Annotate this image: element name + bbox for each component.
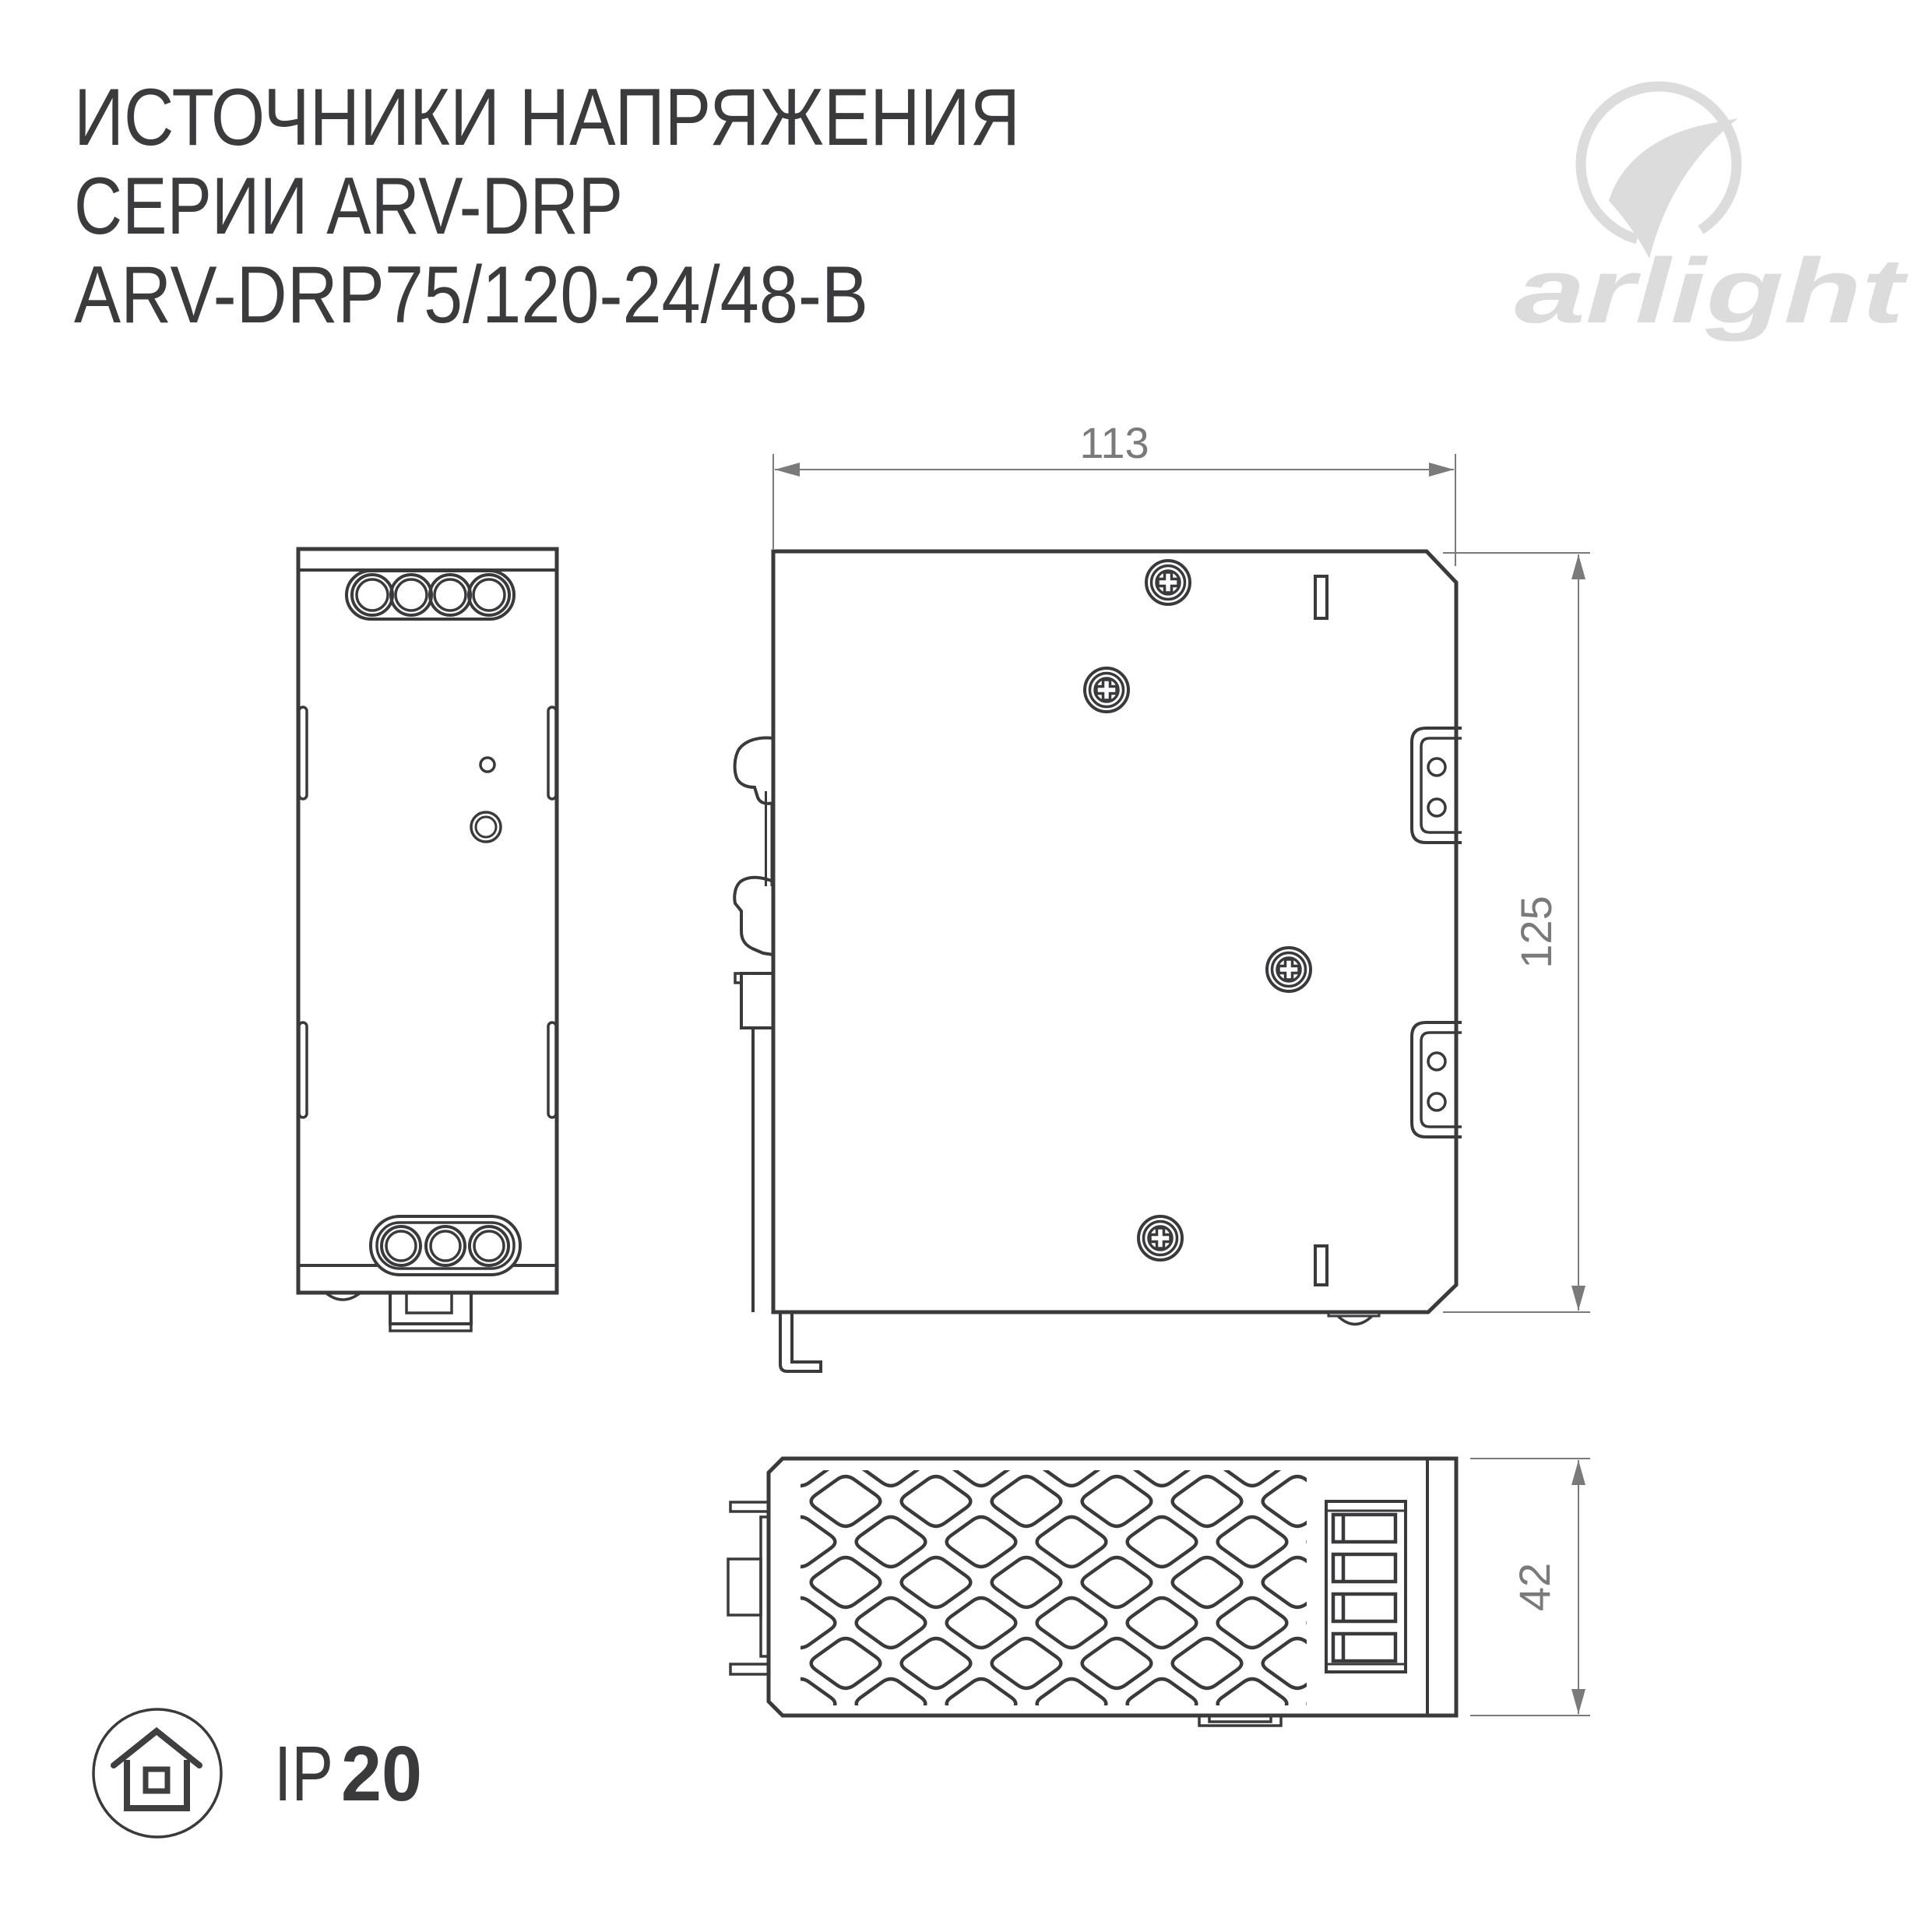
vent-slot	[1315, 1246, 1327, 1285]
front-body-outline	[298, 549, 557, 1293]
side-notch	[299, 707, 307, 799]
terminal-bracket-upper	[1412, 728, 1462, 843]
title-line-2: СЕРИИ ARV-DRP	[74, 161, 623, 252]
terminal-block	[1326, 1501, 1406, 1672]
diamond-vent-grid	[801, 1470, 1307, 1705]
din-rail-profile-bottom	[728, 1502, 769, 1674]
ip-prefix: IP	[274, 1730, 333, 1818]
screw-icon	[1146, 561, 1190, 604]
dim-width-value: 113	[1079, 418, 1149, 467]
dimension-height: 125	[1443, 553, 1590, 1312]
ip-badge: IP 20	[93, 1709, 422, 1837]
din-rail-profile	[734, 738, 821, 1371]
front-view	[298, 549, 557, 1331]
terminal-cells	[1333, 1515, 1395, 1661]
dim-depth-value: 42	[1510, 1563, 1559, 1611]
datasheet-page: ИСТОЧНИКИ НАПРЯЖЕНИЯ СЕРИИ ARV-DRP ARV-D…	[0, 0, 1932, 1932]
title-line-1: ИСТОЧНИКИ НАПРЯЖЕНИЯ	[74, 72, 1020, 163]
dim-height-value: 125	[1511, 896, 1561, 968]
screw-icon	[1085, 668, 1128, 712]
vent-slot	[1315, 576, 1327, 618]
house-icon	[114, 1731, 199, 1808]
bottom-view	[728, 1459, 1456, 1726]
adjust-potentiometer-slot	[476, 817, 496, 837]
dimension-depth: 42	[1470, 1459, 1590, 1716]
dimension-width: 113	[773, 418, 1455, 566]
screw-icon	[1138, 1216, 1182, 1260]
title-line-3: ARV-DRP75/120-24/48-B	[74, 250, 868, 340]
side-notch	[299, 1022, 307, 1117]
side-notch	[548, 707, 556, 799]
brand-name: arlight	[1515, 240, 1909, 343]
screw-icon	[1267, 948, 1311, 991]
terminal-bracket-lower	[1412, 1022, 1462, 1137]
side-view	[734, 551, 1462, 1371]
brand-logo: arlight	[1515, 86, 1909, 343]
ip-value: 20	[341, 1730, 422, 1818]
side-body-outline	[773, 551, 1456, 1312]
title-block: ИСТОЧНИКИ НАПРЯЖЕНИЯ СЕРИИ ARV-DRP ARV-D…	[74, 72, 1020, 340]
side-notch	[548, 1022, 556, 1117]
din-clip-front	[390, 1293, 471, 1331]
technical-drawing-canvas: ИСТОЧНИКИ НАПРЯЖЕНИЯ СЕРИИ ARV-DRP ARV-D…	[0, 0, 1932, 1932]
led-indicator	[480, 758, 494, 772]
